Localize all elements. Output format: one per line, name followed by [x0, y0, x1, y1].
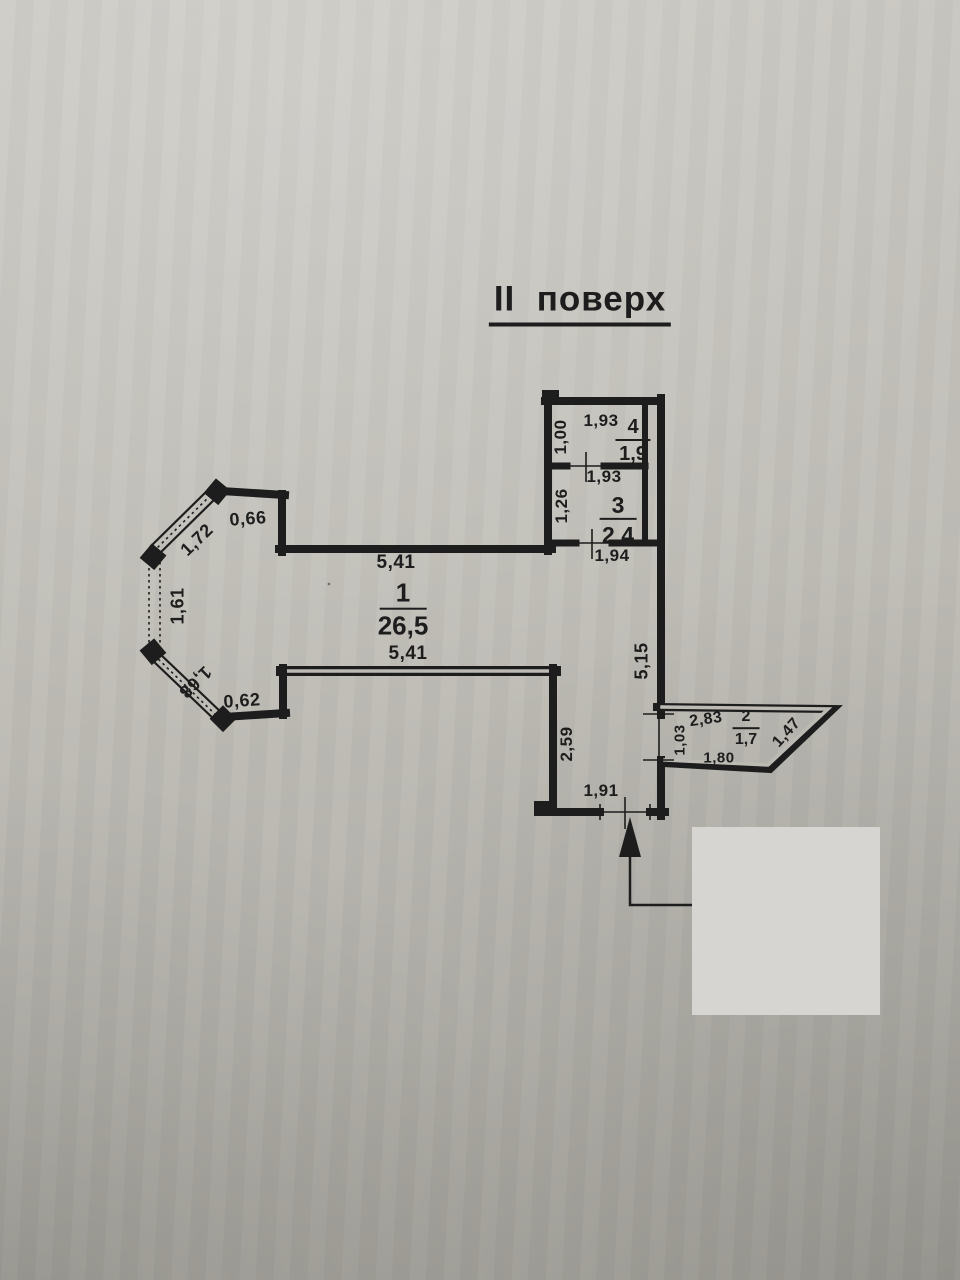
dim-bay-bottom: 0,62	[223, 689, 261, 713]
dim-room1-bottom: 5,41	[389, 643, 428, 665]
redaction-overlay	[692, 827, 880, 1015]
floor-plan-drawing	[0, 0, 960, 1280]
room2-label: 2 1,7	[733, 709, 760, 749]
dim-entrance-width: 1,91	[583, 781, 618, 801]
dim-balcony-left: 1,03	[672, 724, 689, 755]
room3-label: 3 2,4	[600, 493, 637, 547]
scanned-floor-plan-page: II поверх 1 26,5 2 1,7 3 2,4 4 1,9 1,93 …	[0, 0, 960, 1280]
wall-bay-top	[221, 491, 285, 495]
entrance-arrow	[619, 817, 692, 905]
wall-bay-bottom	[224, 713, 286, 717]
dim-balcony-bottom: 1,80	[703, 750, 734, 767]
dim-room3-left: 1,26	[552, 488, 572, 523]
room4-label: 4 1,9	[615, 417, 650, 465]
dim-right-wall: 5,15	[632, 642, 653, 679]
tick-balcony-door	[643, 714, 674, 760]
window-side	[149, 562, 160, 646]
page-title: II поверх	[489, 280, 671, 327]
room4-number: 4	[615, 417, 650, 441]
room2-area: 1,7	[733, 729, 760, 749]
room2-number: 2	[733, 709, 760, 729]
dim-room3-bottom: 1,94	[594, 546, 629, 566]
paper-speck	[328, 583, 331, 586]
dim-hall-left: 2,59	[557, 726, 577, 761]
dim-bay-side: 1,61	[168, 587, 189, 624]
room1-area: 26,5	[378, 610, 429, 640]
room1-label: 1 26,5	[378, 580, 429, 641]
room4-area: 1,9	[615, 441, 650, 465]
room1-number: 1	[380, 580, 426, 610]
tick-entrance-door	[600, 797, 650, 829]
room3-number: 3	[600, 493, 637, 520]
dim-room1-top: 5,41	[377, 552, 416, 574]
bay-corner-mid-top	[140, 543, 167, 570]
dim-room4-top: 1,93	[583, 411, 618, 431]
dim-room4-left: 1,00	[551, 419, 571, 454]
dim-bay-top: 0,66	[229, 507, 267, 531]
room3-area: 2,4	[600, 520, 637, 547]
dim-room3-top: 1,93	[586, 467, 621, 487]
